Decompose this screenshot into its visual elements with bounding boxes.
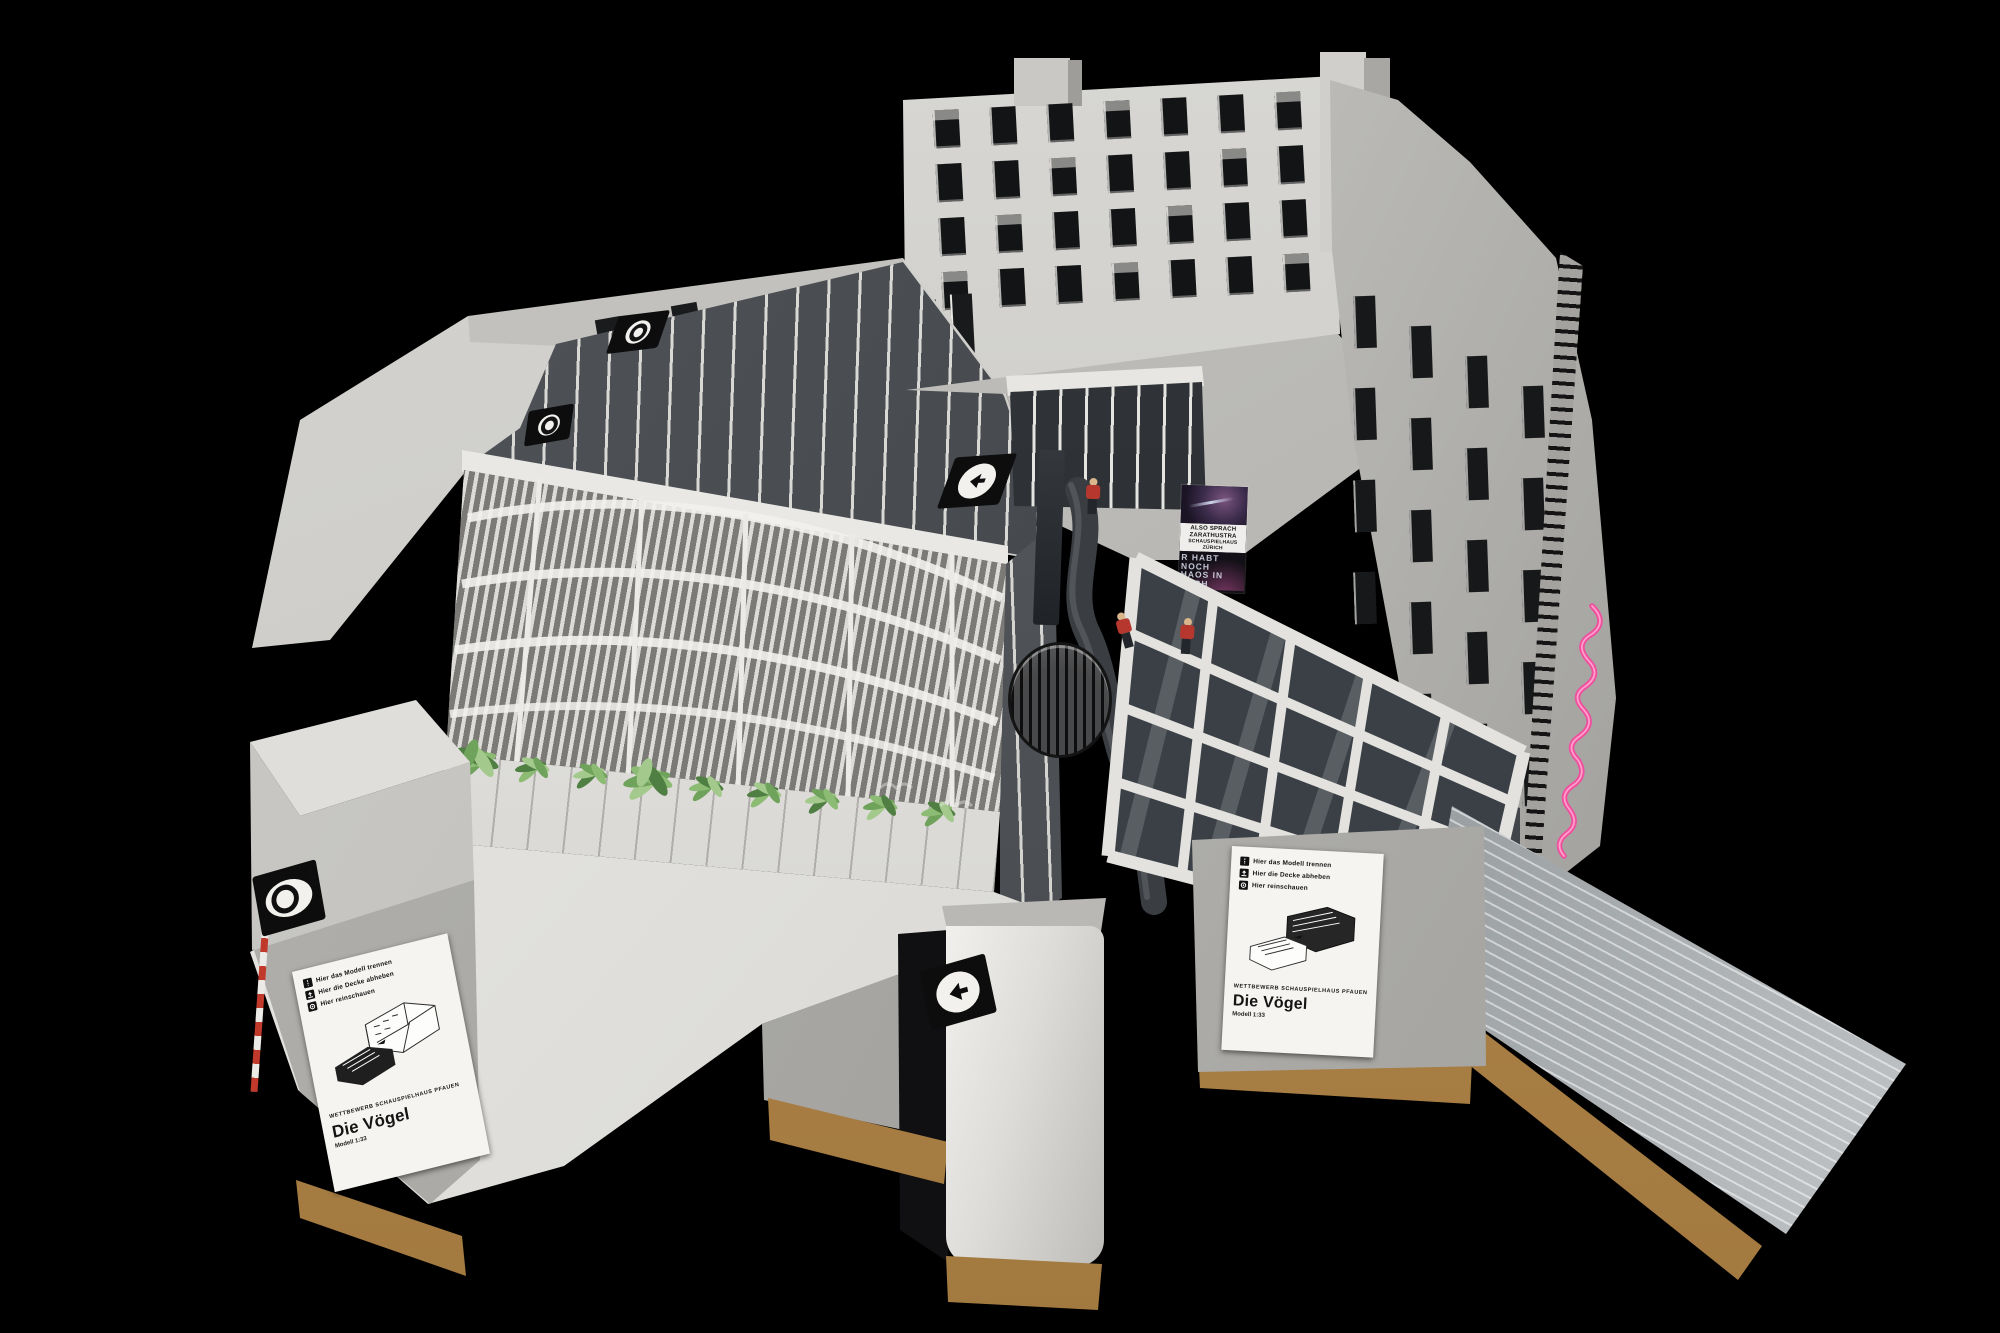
- window: [1283, 253, 1311, 292]
- look-inside-icon: [1239, 880, 1248, 889]
- window: [1465, 540, 1489, 593]
- window: [1103, 100, 1131, 139]
- spiral-stair-railing: [1008, 642, 1112, 758]
- window: [1223, 202, 1251, 241]
- info-placard-side: Hier das Modell trennen Hier die Decke a…: [1221, 846, 1383, 1058]
- window: [1409, 418, 1433, 471]
- window: [1280, 199, 1308, 238]
- window: [1409, 694, 1433, 747]
- window: [1353, 296, 1377, 349]
- window: [1112, 262, 1140, 301]
- poster-slogan: R HABT NOCH HAOS IN EUCH: [1178, 551, 1245, 591]
- eye-lash: [309, 869, 313, 875]
- rounded-corner-tower: [942, 892, 1108, 1312]
- window: [1465, 448, 1489, 501]
- left-arrow-glyph: [961, 468, 994, 494]
- eye-lash: [312, 881, 318, 885]
- window: [995, 214, 1023, 253]
- window: [1160, 97, 1188, 136]
- window: [1353, 388, 1377, 441]
- eye-lash: [311, 874, 317, 880]
- scale-figure: [1113, 611, 1136, 649]
- instruction-label: Hier das Modell trennen: [1253, 858, 1332, 869]
- window: [1409, 510, 1433, 563]
- window: [1055, 265, 1083, 304]
- scale-figure: [1179, 618, 1195, 655]
- viewer-disc: [537, 413, 562, 438]
- detach-icon: [303, 977, 313, 988]
- figure-legs: [1087, 499, 1097, 514]
- window: [1109, 208, 1137, 247]
- eye-pupil: [269, 881, 301, 916]
- placard-axonometric-drawing: [1235, 893, 1371, 986]
- instruction-label: Hier die Decke abheben: [1252, 870, 1330, 881]
- window: [1163, 151, 1191, 190]
- window: [1409, 326, 1433, 379]
- instruction-label: Hier reinschauen: [1252, 882, 1308, 892]
- window: [935, 163, 963, 202]
- look-inside-icon: [307, 1001, 317, 1012]
- window: [1226, 256, 1254, 295]
- model-photo-scene: ALSO SPRACH ZARATHUSTRA SCHAUSPIELHAUS Z…: [0, 0, 2000, 1333]
- poster-slogan-line: EUCH: [1180, 579, 1242, 590]
- eye-disc: [263, 874, 315, 923]
- window: [1046, 103, 1074, 142]
- window: [998, 268, 1026, 307]
- window: [1106, 154, 1134, 193]
- poster-artwork: [1181, 485, 1248, 525]
- window: [933, 109, 961, 148]
- window: [1353, 480, 1377, 533]
- arrow-disc: [933, 966, 984, 1017]
- theatre-poster: ALSO SPRACH ZARATHUSTRA SCHAUSPIELHAUS Z…: [1178, 485, 1248, 593]
- window: [1169, 259, 1197, 298]
- window: [1049, 157, 1077, 196]
- viewer-pupil: [539, 415, 558, 436]
- window: [1353, 572, 1377, 625]
- window: [1465, 632, 1489, 685]
- window: [1465, 356, 1489, 409]
- figure-legs: [1181, 639, 1191, 655]
- window: [989, 106, 1017, 145]
- viewer-disc: [622, 319, 654, 345]
- window: [938, 217, 966, 256]
- poster-title-band: ALSO SPRACH ZARATHUSTRA SCHAUSPIELHAUS Z…: [1180, 523, 1247, 554]
- left-arrow-glyph: [940, 973, 975, 1011]
- window: [1465, 724, 1489, 777]
- arrow-disc: [953, 462, 1002, 499]
- window: [1220, 148, 1248, 187]
- lift-roof-icon: [1239, 868, 1248, 877]
- window: [1521, 478, 1545, 531]
- atrium-mullion: [1108, 558, 1136, 856]
- window: [1166, 205, 1194, 244]
- window: [992, 160, 1020, 199]
- figure-torso: [1180, 625, 1195, 640]
- window: [1277, 145, 1305, 184]
- window: [1409, 602, 1433, 655]
- lift-roof-icon: [305, 989, 315, 1000]
- scale-figure: [1085, 478, 1100, 514]
- window: [1052, 211, 1080, 250]
- window: [1274, 91, 1302, 130]
- viewer-pupil: [626, 322, 649, 342]
- figure-torso: [1086, 485, 1100, 499]
- detach-icon: [1240, 856, 1249, 865]
- window: [1521, 386, 1545, 439]
- figure-legs: [1121, 632, 1134, 649]
- window: [1217, 94, 1245, 133]
- entrance-pylon: [1033, 450, 1065, 626]
